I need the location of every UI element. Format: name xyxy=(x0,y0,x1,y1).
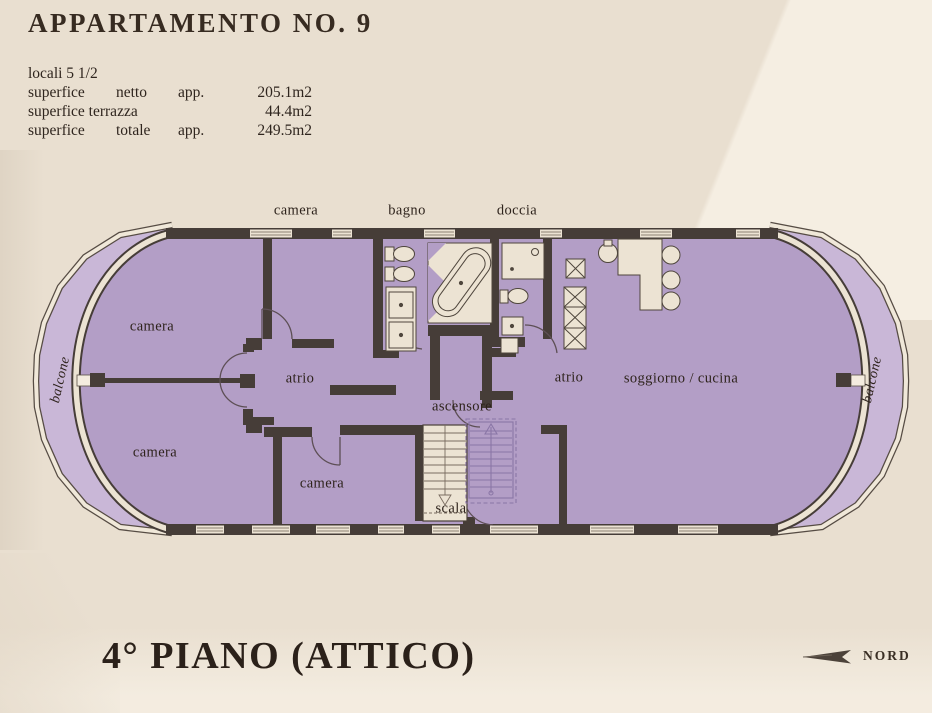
info-cell-value: 205.1m2 xyxy=(236,83,312,102)
surface-info-table: locali 5 1/2 superfice netto app. 205.1m… xyxy=(28,64,312,140)
room-label-camera-upper-left: camera xyxy=(130,319,174,336)
room-label-camera-top: camera xyxy=(274,203,318,220)
room-label-atrio-left: atrio xyxy=(286,371,315,388)
room-label-camera-bottom: camera xyxy=(300,476,344,493)
room-label-scala: scala xyxy=(436,501,467,518)
info-cell: locali 5 1/2 xyxy=(28,64,116,83)
info-cell: app. xyxy=(178,83,236,102)
compass: NORD xyxy=(802,648,911,664)
info-cell: totale xyxy=(116,121,178,140)
room-label-ascensore: ascensore xyxy=(432,399,492,416)
paper-shadow-bottom-left xyxy=(0,553,120,713)
info-cell xyxy=(178,102,236,121)
room-label-soggiorno: soggiorno / cucina xyxy=(624,371,738,388)
info-cell: superfice terrazza xyxy=(28,102,116,121)
top-wall xyxy=(166,228,778,239)
balcony-door-right xyxy=(836,373,865,387)
room-label-doccia: doccia xyxy=(497,203,537,220)
floor-plan-drawing xyxy=(0,195,932,545)
page-title: APPARTAMENTO NO. 9 xyxy=(28,8,373,39)
chair-icon xyxy=(662,246,680,264)
bidet-icon xyxy=(394,267,415,282)
info-row-locali: locali 5 1/2 xyxy=(28,64,312,83)
balcony-door-left xyxy=(77,373,105,387)
info-cell: superfice xyxy=(28,121,116,140)
floor-title: 4° PIANO (ATTICO) xyxy=(102,634,476,678)
room-label-bagno: bagno xyxy=(388,203,425,220)
shower-tray-icon xyxy=(502,243,544,279)
info-cell: app. xyxy=(178,121,236,140)
info-row-totale: superfice totale app. 249.5m2 xyxy=(28,121,312,140)
info-cell xyxy=(178,64,236,83)
room-label-camera-lower-left: camera xyxy=(133,445,177,462)
chair-icon xyxy=(662,292,680,310)
brochure-page: APPARTAMENTO NO. 9 locali 5 1/2 superfic… xyxy=(0,0,932,713)
room-label-atrio-right: atrio xyxy=(555,370,584,387)
info-cell xyxy=(116,64,178,83)
info-cell: superfice xyxy=(28,83,116,102)
chair-icon xyxy=(662,271,680,289)
toilet-icon xyxy=(508,289,528,304)
floor-plan: camera bagno doccia camera camera camera… xyxy=(0,195,932,545)
info-cell: netto xyxy=(116,83,178,102)
info-cell xyxy=(116,102,178,121)
info-cell-value: 249.5m2 xyxy=(236,121,312,140)
info-row-netto: superfice netto app. 205.1m2 xyxy=(28,83,312,102)
info-cell-value xyxy=(236,64,312,83)
compass-label: NORD xyxy=(863,648,911,664)
toilet-icon xyxy=(394,247,415,262)
north-arrow-icon xyxy=(802,648,856,664)
info-cell-value: 44.4m2 xyxy=(236,102,312,121)
info-row-terrazza: superfice terrazza 44.4m2 xyxy=(28,102,312,121)
